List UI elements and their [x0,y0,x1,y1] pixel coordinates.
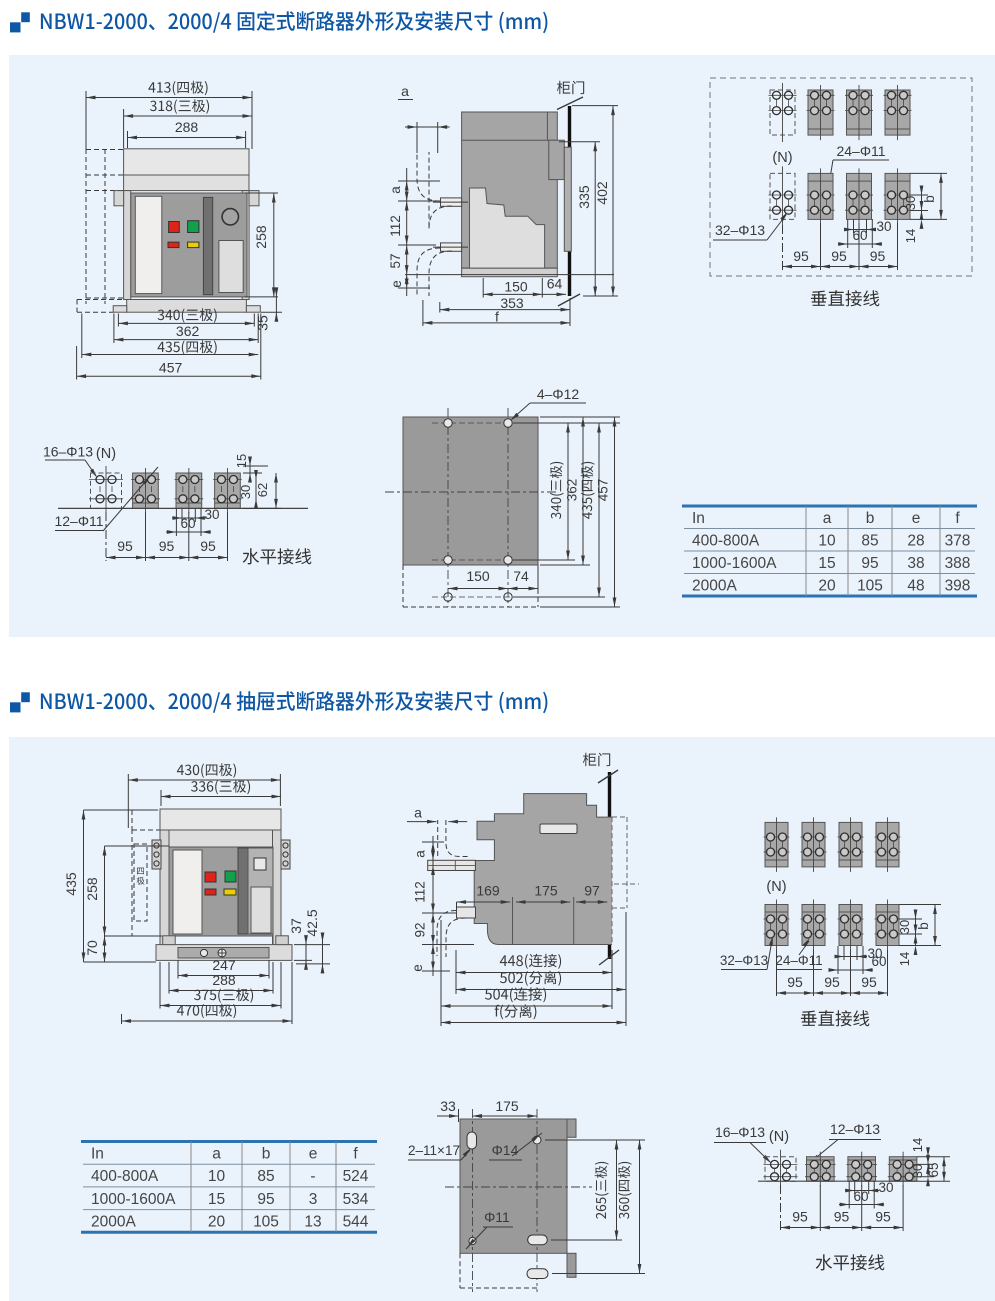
svg-text:b: b [916,922,931,930]
svg-text:175: 175 [495,1098,519,1114]
svg-text:400-800A: 400-800A [692,532,760,549]
svg-text:95: 95 [792,1209,808,1225]
svg-text:f: f [495,309,499,325]
svg-text:10: 10 [818,532,836,549]
svg-text:60: 60 [871,954,886,969]
svg-text:62: 62 [255,483,270,497]
svg-text:353: 353 [500,295,524,311]
svg-text:362: 362 [176,323,200,339]
svg-text:398: 398 [945,577,971,594]
svg-text:362: 362 [565,479,580,502]
svg-text:a: a [414,805,422,821]
svg-text:112: 112 [413,881,428,903]
svg-text:In: In [91,1145,104,1162]
svg-text:2000A: 2000A [692,577,737,594]
svg-text:457: 457 [596,479,611,502]
svg-text:1000-1600A: 1000-1600A [692,555,777,572]
svg-text:74: 74 [513,568,529,584]
svg-text:30: 30 [204,507,219,522]
svg-text:57: 57 [388,253,403,268]
svg-text:70: 70 [84,940,100,956]
svg-text:15: 15 [234,454,249,468]
svg-text:112: 112 [388,215,403,237]
svg-text:97: 97 [584,883,600,899]
svg-text:3: 3 [309,1191,318,1208]
svg-text:105: 105 [253,1213,279,1230]
svg-text:388: 388 [945,555,971,572]
svg-text:30: 30 [903,196,918,210]
svg-text:a: a [388,186,403,194]
svg-text:95: 95 [824,974,840,990]
svg-text:105: 105 [857,577,883,594]
svg-text:48: 48 [907,577,924,594]
svg-text:16–Φ13: 16–Φ13 [43,444,93,460]
svg-text:60: 60 [180,516,195,531]
svg-text:288: 288 [175,119,199,135]
svg-text:14: 14 [903,229,918,243]
svg-text:e: e [410,964,425,972]
svg-text:258: 258 [253,225,269,249]
svg-text:150: 150 [504,279,528,295]
svg-text:a: a [823,510,832,527]
svg-text:a: a [413,850,428,858]
svg-text:2000A: 2000A [91,1213,136,1230]
svg-text:16–Φ13: 16–Φ13 [715,1124,765,1140]
svg-text:95: 95 [861,974,877,990]
svg-text:95: 95 [875,1209,891,1225]
svg-text:169: 169 [476,883,500,899]
svg-text:95: 95 [257,1191,274,1208]
svg-text:f: f [353,1145,358,1162]
svg-text:85: 85 [257,1168,274,1185]
svg-text:92: 92 [413,922,428,937]
svg-text:30: 30 [897,920,912,934]
svg-text:24–Φ11: 24–Φ11 [775,953,822,968]
svg-text:258: 258 [84,877,100,901]
svg-text:30: 30 [878,1180,893,1195]
svg-text:20: 20 [208,1213,226,1230]
svg-text:13: 13 [304,1213,321,1230]
svg-text:Φ14: Φ14 [492,1142,519,1158]
svg-text:534: 534 [343,1191,369,1208]
svg-text:(N): (N) [96,446,116,462]
svg-text:e: e [912,510,921,527]
svg-text:95: 95 [159,538,175,554]
svg-text:247: 247 [212,957,236,973]
svg-text:85: 85 [861,532,878,549]
svg-text:b: b [866,510,875,527]
svg-text:-: - [310,1168,315,1185]
svg-text:Φ11: Φ11 [484,1209,510,1225]
svg-text:402: 402 [594,181,610,205]
svg-text:15: 15 [208,1191,225,1208]
svg-text:95: 95 [200,538,216,554]
svg-text:35: 35 [255,315,271,331]
svg-text:435: 435 [63,872,79,896]
svg-text:32–Φ13: 32–Φ13 [715,222,765,238]
svg-text:60: 60 [853,1189,868,1204]
svg-text:95: 95 [793,248,809,264]
svg-text:(N): (N) [772,150,792,166]
svg-text:20: 20 [818,577,836,594]
svg-text:378: 378 [945,532,971,549]
svg-text:30: 30 [238,485,253,499]
svg-text:12–Φ13: 12–Φ13 [830,1121,880,1137]
svg-text:14: 14 [910,1138,925,1152]
svg-text:a: a [212,1145,221,1162]
svg-text:64: 64 [547,276,563,292]
svg-text:95: 95 [117,538,133,554]
svg-text:60: 60 [852,228,867,243]
svg-text:175: 175 [534,883,558,899]
svg-text:30: 30 [910,1164,925,1178]
svg-text:42.5: 42.5 [304,909,320,936]
svg-text:14: 14 [897,952,912,966]
svg-text:4–Φ12: 4–Φ12 [537,386,580,402]
svg-text:(N): (N) [769,1129,789,1145]
svg-text:24–Φ11: 24–Φ11 [836,143,885,159]
svg-text:b: b [922,195,937,203]
svg-text:e: e [309,1145,318,1162]
svg-text:2–11×17: 2–11×17 [408,1143,460,1158]
svg-text:30: 30 [876,219,891,234]
svg-text:95: 95 [787,974,803,990]
svg-text:65: 65 [926,1162,941,1177]
svg-text:a: a [401,83,409,99]
svg-text:95: 95 [870,248,886,264]
svg-text:1000-1600A: 1000-1600A [91,1191,176,1208]
svg-text:In: In [692,510,705,527]
svg-text:524: 524 [343,1168,369,1185]
svg-text:33: 33 [440,1098,456,1114]
svg-text:544: 544 [343,1213,369,1230]
svg-text:12–Φ11: 12–Φ11 [54,513,103,529]
svg-text:457: 457 [159,360,183,376]
svg-text:10: 10 [208,1168,226,1185]
svg-text:f: f [955,510,960,527]
svg-text:37: 37 [288,918,304,934]
svg-text:95: 95 [861,555,878,572]
svg-text:e: e [389,280,404,288]
svg-text:288: 288 [212,972,236,988]
svg-text:15: 15 [818,555,835,572]
svg-text:95: 95 [831,248,847,264]
svg-text:335: 335 [576,185,592,209]
svg-text:95: 95 [834,1209,850,1225]
svg-text:150: 150 [466,568,490,584]
svg-text:400-800A: 400-800A [91,1168,159,1185]
svg-text:38: 38 [907,555,924,572]
svg-text:(N): (N) [766,879,786,895]
svg-text:32–Φ13: 32–Φ13 [720,953,768,968]
svg-text:b: b [262,1145,271,1162]
svg-text:28: 28 [907,532,924,549]
